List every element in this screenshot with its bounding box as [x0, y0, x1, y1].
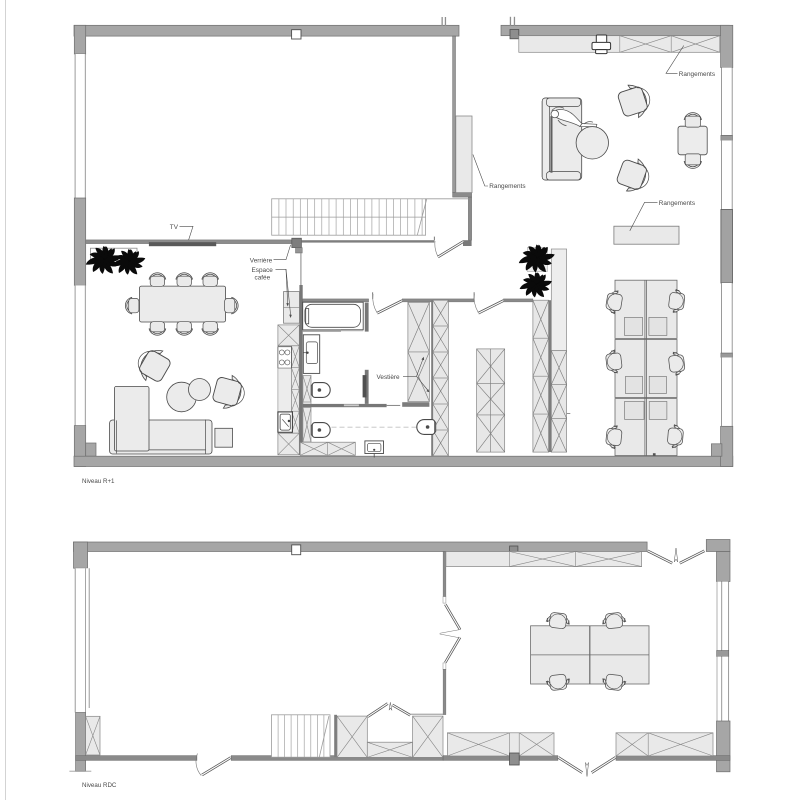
svg-text:Niveau R+1: Niveau R+1: [82, 478, 115, 485]
svg-text:cafée: cafée: [255, 274, 271, 281]
svg-text:Rangements: Rangements: [659, 200, 695, 207]
svg-text:Rangements: Rangements: [679, 71, 715, 78]
svg-text:Niveau RDC: Niveau RDC: [82, 782, 117, 789]
svg-text:TV: TV: [170, 224, 179, 231]
svg-text:Espace: Espace: [252, 267, 274, 274]
svg-text:Verrière: Verrière: [250, 257, 273, 264]
svg-text:Rangements: Rangements: [489, 183, 525, 190]
svg-text:Vestière: Vestière: [377, 374, 401, 381]
